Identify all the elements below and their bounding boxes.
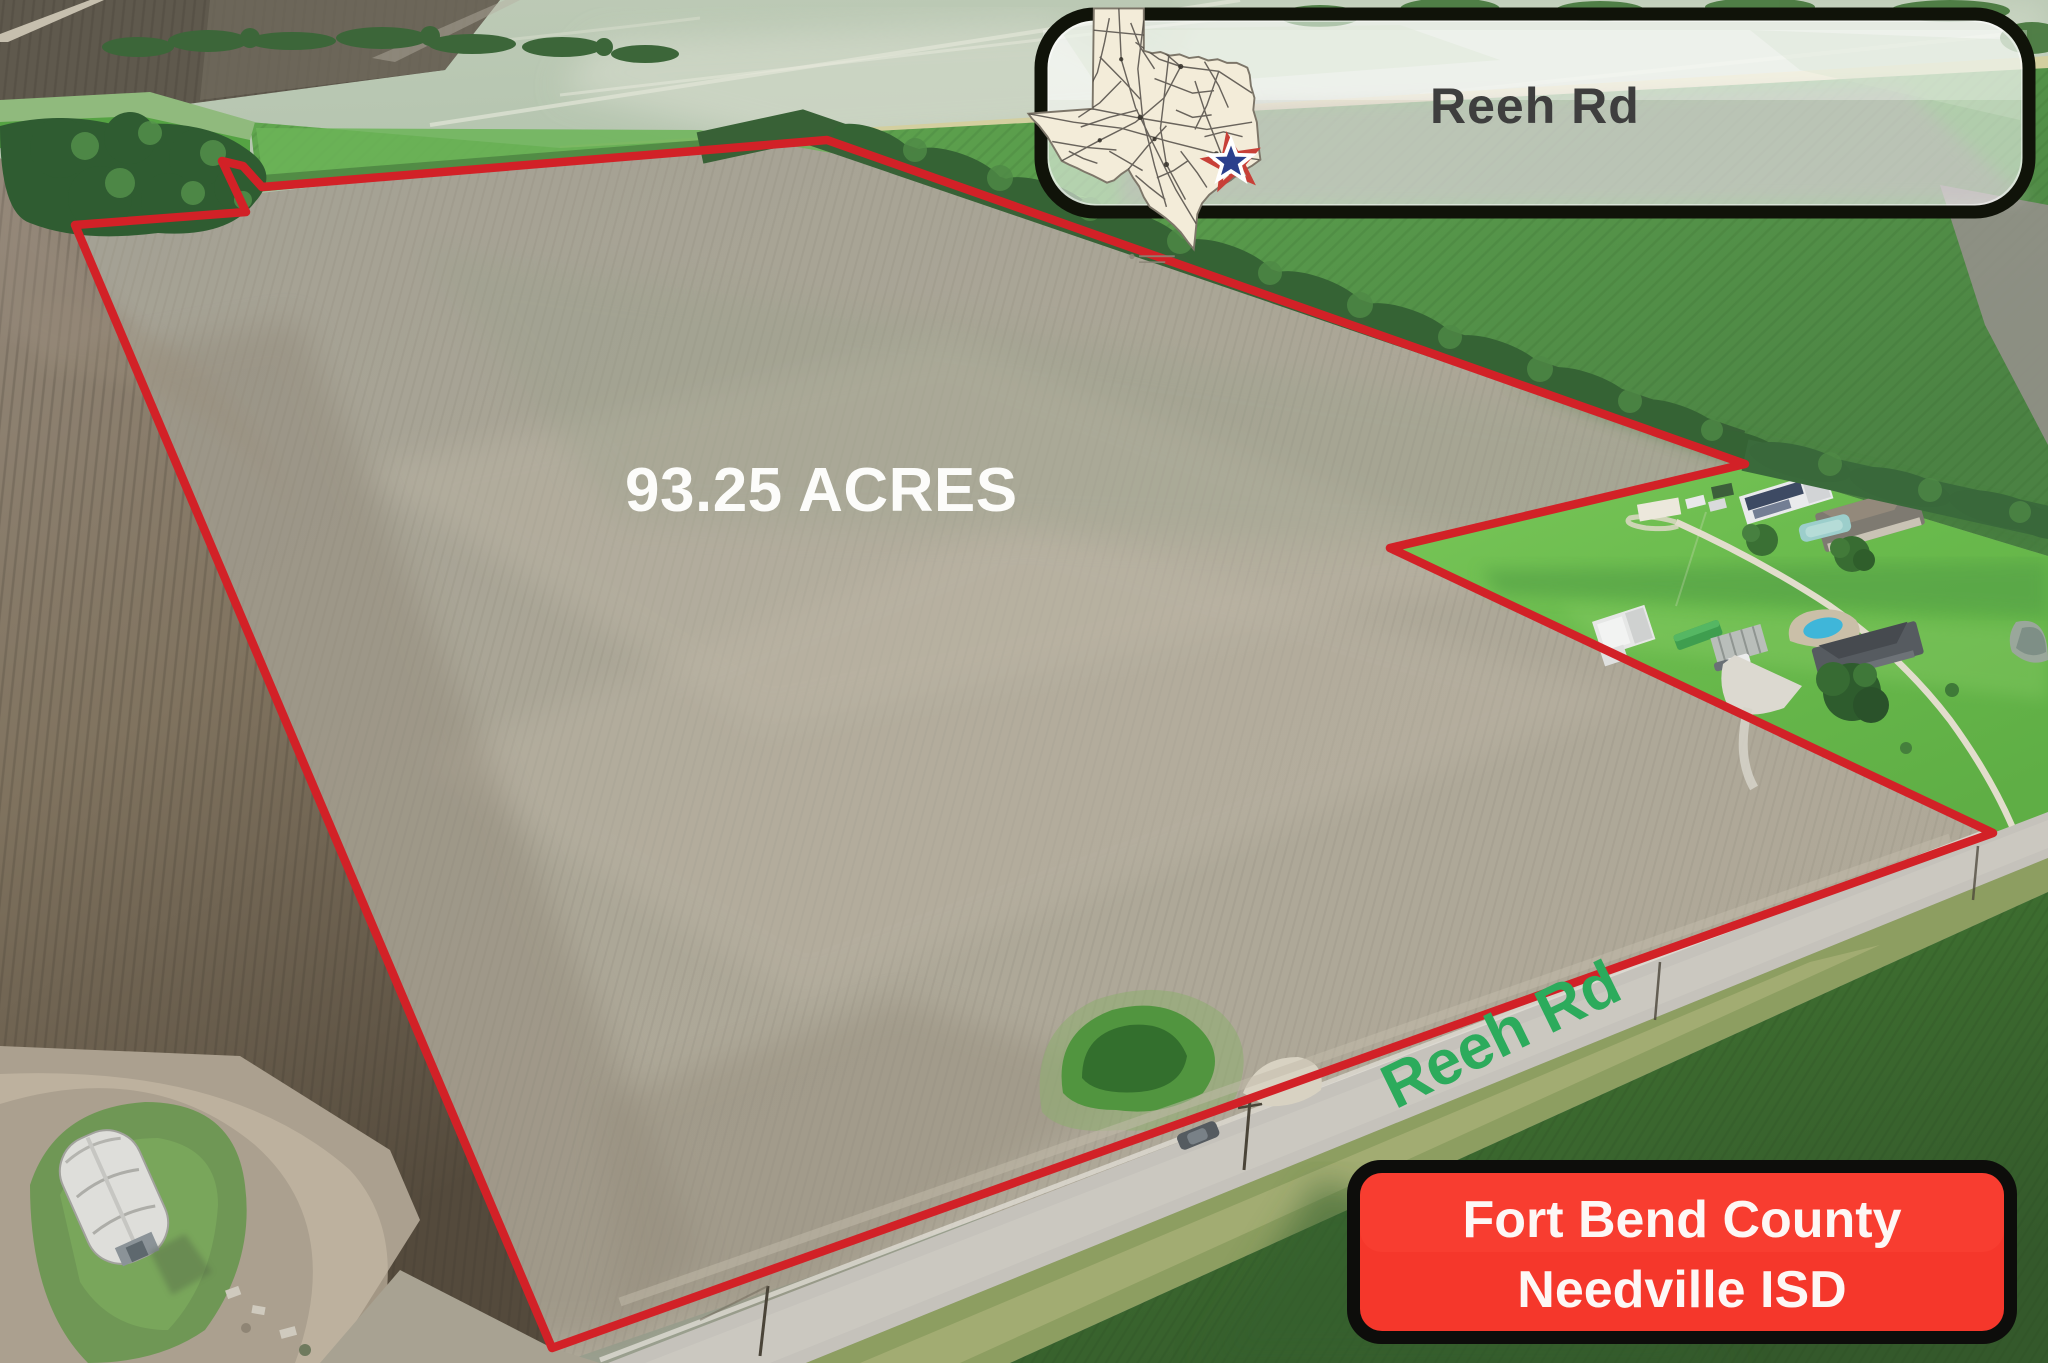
svg-text:93.25 ACRES: 93.25 ACRES (625, 456, 1018, 525)
svg-text:Needville ISD: Needville ISD (1517, 1261, 1846, 1319)
svg-text:Reeh Rd: Reeh Rd (1430, 78, 1640, 134)
svg-text:Fort Bend County: Fort Bend County (1462, 1191, 1901, 1249)
